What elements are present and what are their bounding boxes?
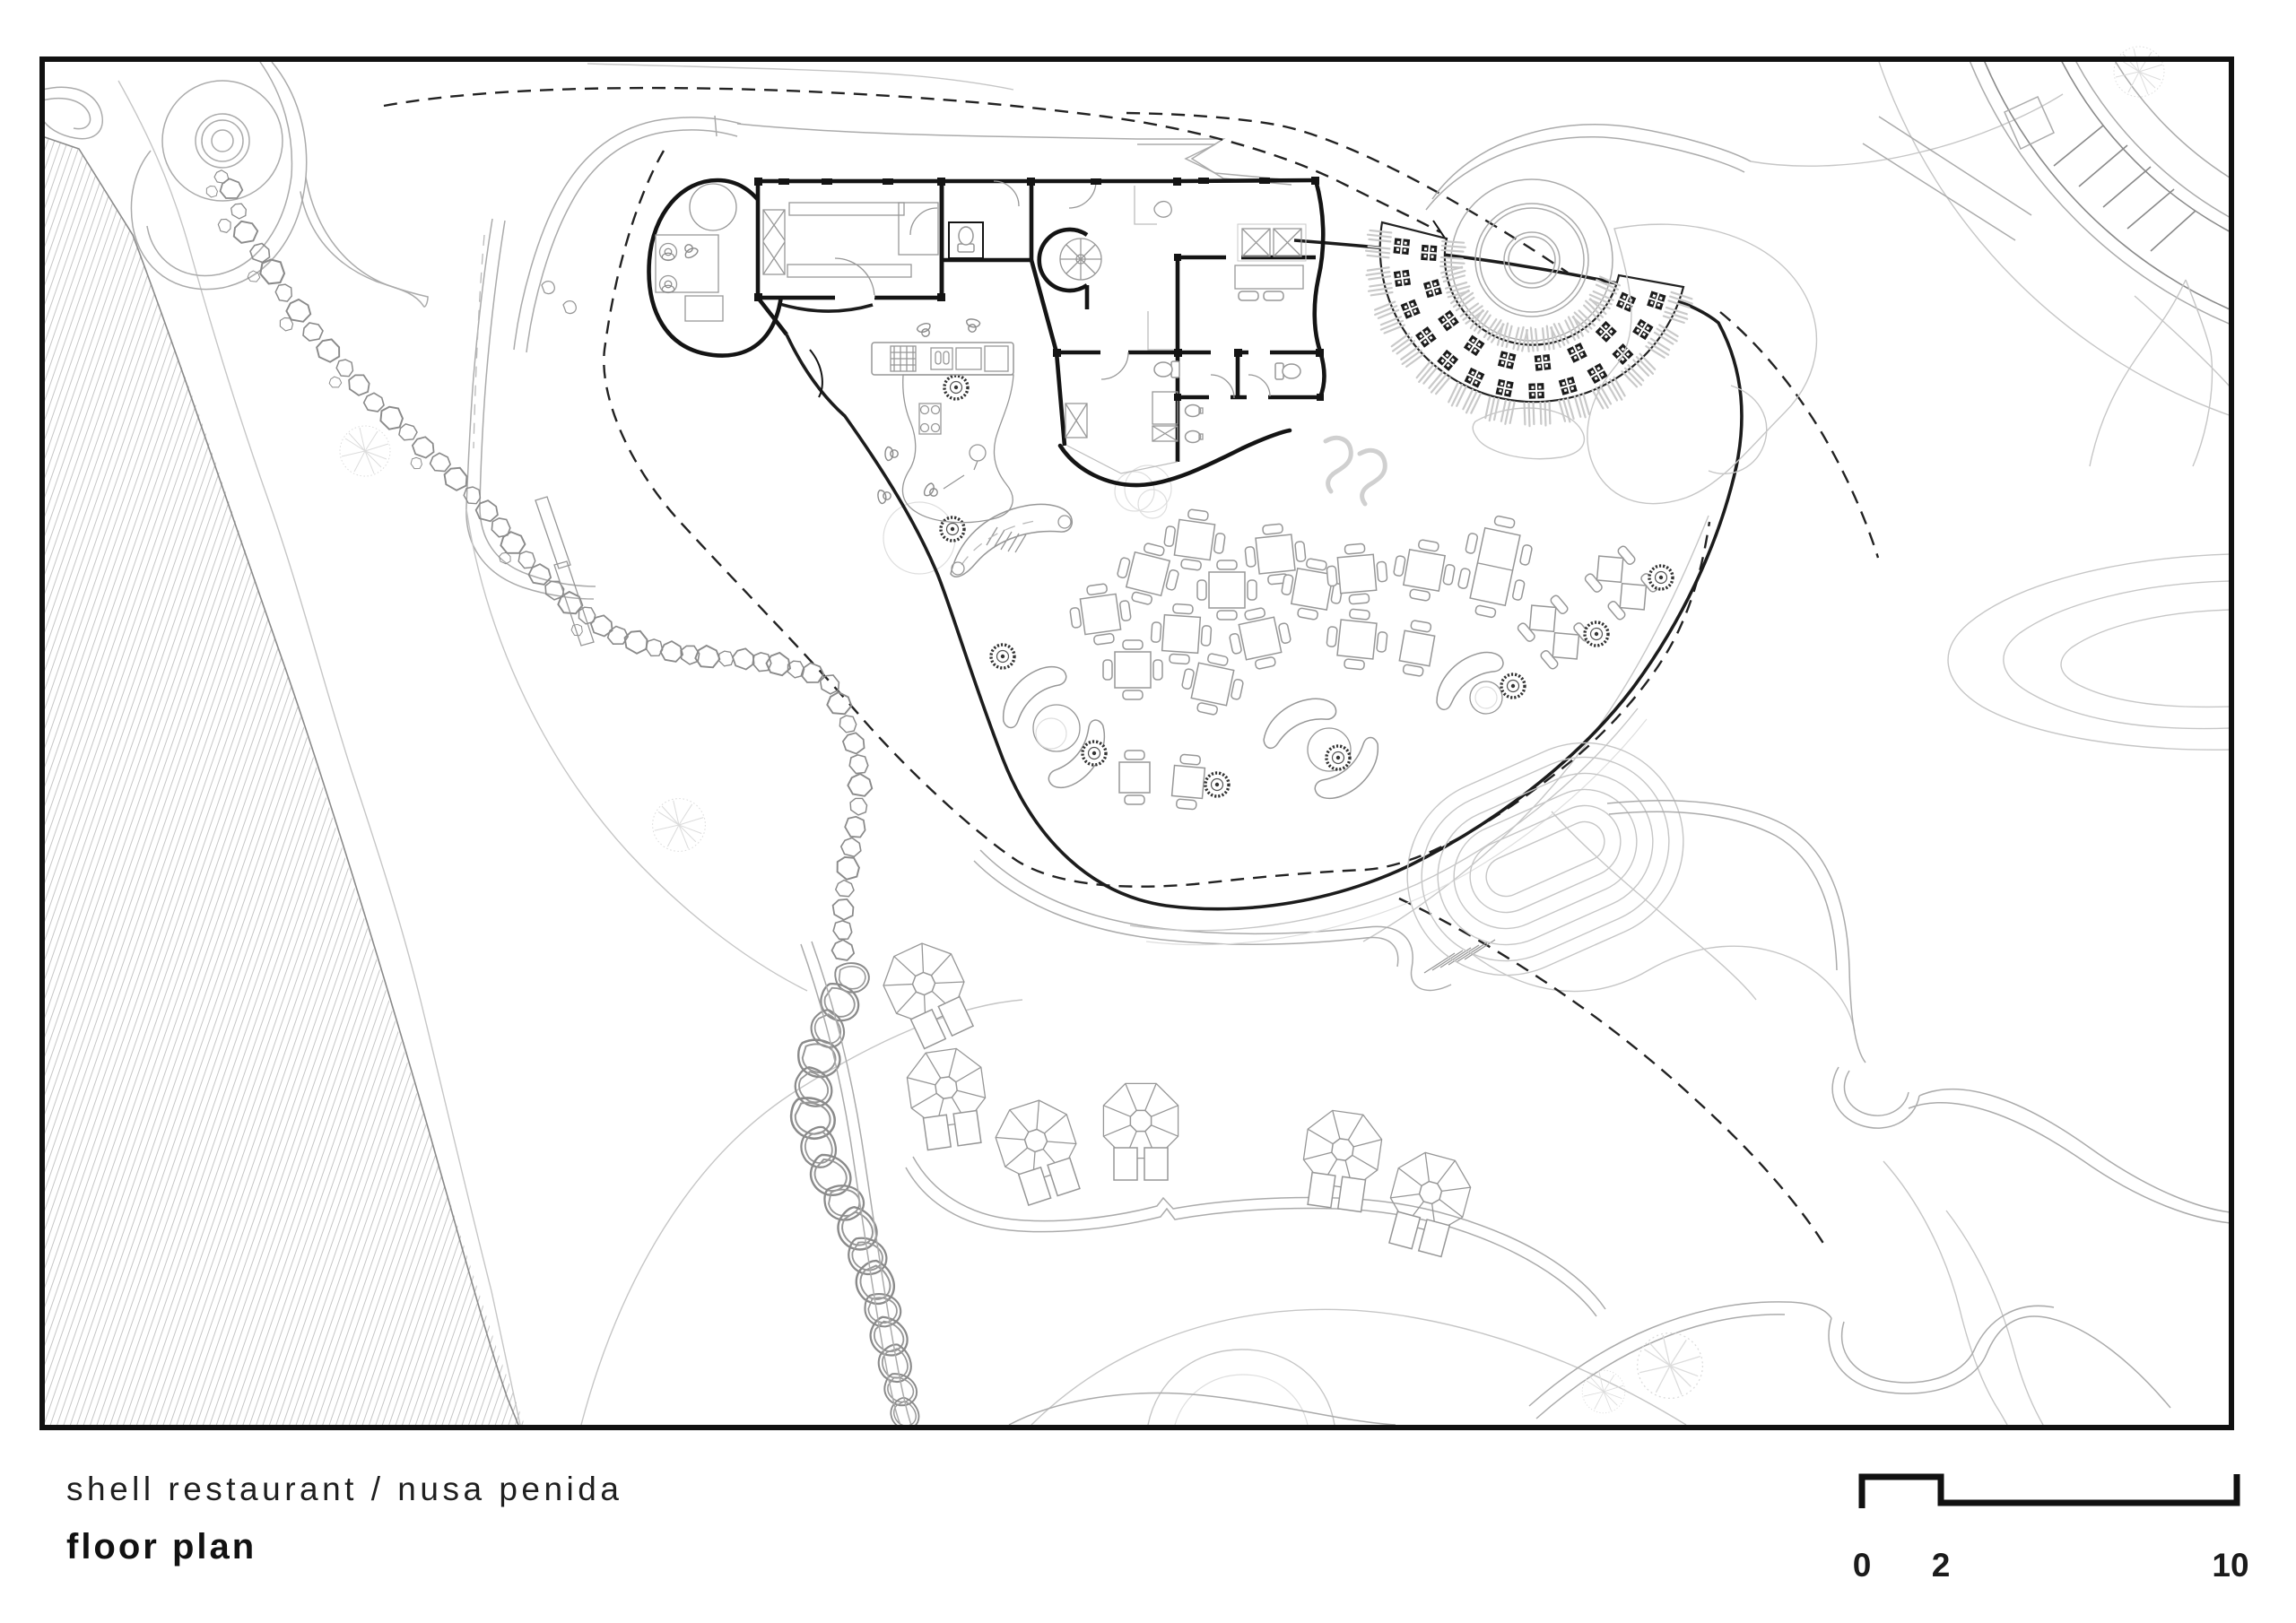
spiral-stair <box>1039 230 1101 309</box>
drawing-title: floor plan <box>66 1527 257 1567</box>
cliff-hatch-slope <box>42 81 525 1425</box>
right-wing <box>1178 180 1325 397</box>
curved-benches <box>989 645 1511 807</box>
switchback-ramp <box>1376 711 1865 1063</box>
scale-bar: 0 2 10 <box>1853 1474 2249 1584</box>
hall <box>1031 181 1178 352</box>
site-plan-canvas: 0 2 10 <box>0 0 2296 1623</box>
scale-label-10: 10 <box>2212 1547 2248 1584</box>
scale-bar-shape <box>1862 1474 2237 1508</box>
buffet-counter <box>951 504 1072 577</box>
kitchen <box>758 181 942 298</box>
corridor-rooms <box>942 181 1031 298</box>
project-title: shell restaurant / nusa penida <box>66 1471 622 1508</box>
garden-paths <box>801 850 1831 1425</box>
organic-office-room <box>542 180 782 356</box>
hairpin-road <box>1829 1067 2231 1408</box>
scale-label-2: 2 <box>1932 1547 1951 1584</box>
amphitheater-loungers <box>1366 222 1694 426</box>
drawing-sheet: 0 2 10 shell restaurant / nusa penida fl… <box>0 0 2296 1623</box>
building-block <box>542 177 1325 485</box>
trees <box>340 47 2164 1413</box>
beach-huts <box>874 934 1476 1260</box>
boulder-path <box>785 963 925 1435</box>
scale-label-0: 0 <box>1853 1547 1872 1584</box>
